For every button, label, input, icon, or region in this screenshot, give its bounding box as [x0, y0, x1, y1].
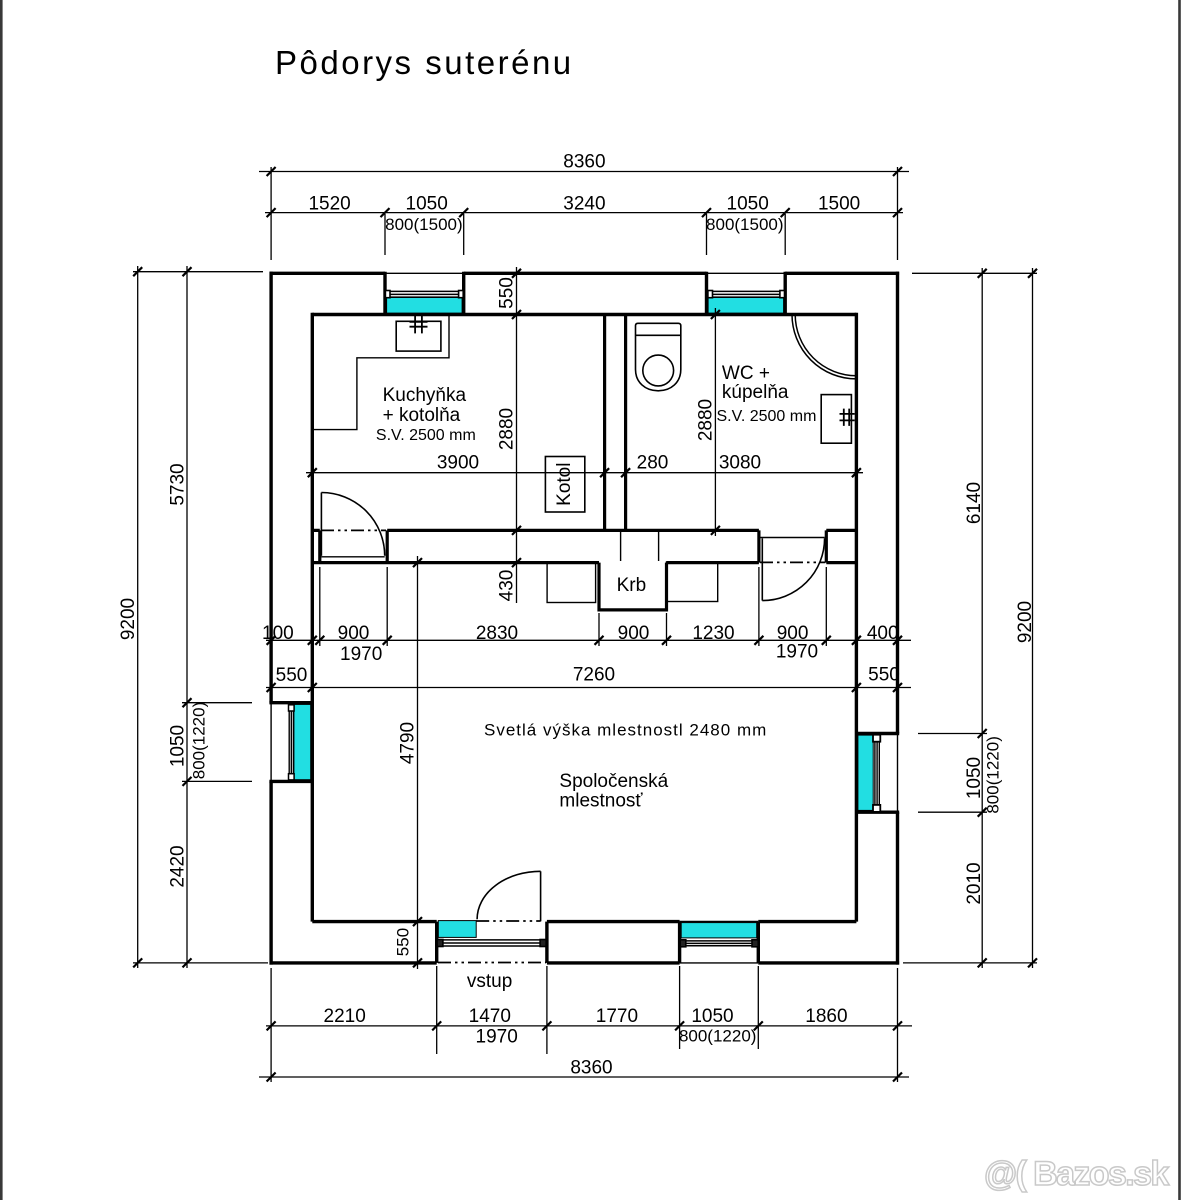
svg-text:Pôdorys suterénu: Pôdorys suterénu — [275, 44, 574, 81]
svg-text:100: 100 — [262, 623, 294, 644]
svg-text:2880: 2880 — [497, 408, 518, 450]
svg-text:430: 430 — [497, 570, 518, 602]
svg-text:2830: 2830 — [476, 623, 518, 644]
svg-text:550: 550 — [276, 665, 308, 686]
svg-text:9200: 9200 — [118, 598, 139, 640]
svg-text:5730: 5730 — [167, 463, 188, 505]
svg-text:Spoločenská: Spoločenská — [559, 771, 668, 792]
svg-text:1050: 1050 — [727, 194, 769, 215]
svg-text:1860: 1860 — [805, 1006, 847, 1027]
svg-text:2420: 2420 — [167, 845, 188, 887]
svg-text:4790: 4790 — [398, 722, 419, 764]
svg-text:1970: 1970 — [340, 644, 382, 665]
svg-text:550: 550 — [394, 928, 413, 956]
svg-text:1770: 1770 — [596, 1006, 638, 1027]
svg-text:1050: 1050 — [406, 194, 448, 215]
svg-text:3240: 3240 — [563, 194, 605, 215]
svg-text:400: 400 — [867, 623, 899, 644]
svg-text:2010: 2010 — [964, 862, 985, 904]
svg-text:S.V. 2500 mm: S.V. 2500 mm — [717, 408, 817, 425]
svg-text:Kuchyňka: Kuchyňka — [383, 385, 467, 406]
svg-text:2210: 2210 — [324, 1006, 366, 1027]
svg-text:6140: 6140 — [964, 482, 985, 524]
svg-text:280: 280 — [637, 453, 669, 474]
svg-text:800(1220): 800(1220) — [679, 1027, 757, 1046]
svg-text:8360: 8360 — [563, 152, 605, 173]
svg-text:900: 900 — [618, 623, 650, 644]
svg-text:1970: 1970 — [776, 642, 818, 663]
svg-text:+ kotolňa: + kotolňa — [383, 405, 461, 426]
svg-text:3080: 3080 — [719, 453, 761, 474]
svg-text:2880: 2880 — [695, 399, 716, 441]
svg-text:Krb: Krb — [617, 575, 647, 596]
svg-text:800(1500): 800(1500) — [706, 215, 784, 234]
svg-text:mlestnosť: mlestnosť — [559, 791, 643, 812]
svg-text:1970: 1970 — [476, 1027, 518, 1048]
svg-text:550: 550 — [868, 665, 900, 686]
svg-text:800(1500): 800(1500) — [385, 215, 463, 234]
svg-text:kúpelňa: kúpelňa — [722, 382, 789, 403]
svg-text:1230: 1230 — [692, 623, 734, 644]
svg-text:@( Bazos.sk: @( Bazos.sk — [984, 1155, 1169, 1193]
svg-text:9200: 9200 — [1015, 601, 1036, 643]
svg-text:Kotol: Kotol — [554, 463, 575, 506]
svg-text:8360: 8360 — [570, 1058, 612, 1079]
svg-text:7260: 7260 — [573, 665, 615, 686]
svg-text:vstup: vstup — [467, 971, 512, 992]
svg-text:1050: 1050 — [167, 725, 188, 767]
svg-text:800(1220): 800(1220) — [190, 702, 209, 780]
svg-text:S.V. 2500 mm: S.V. 2500 mm — [376, 427, 476, 444]
svg-text:1050: 1050 — [691, 1006, 733, 1027]
svg-text:1470: 1470 — [469, 1006, 511, 1027]
svg-text:800(1220): 800(1220) — [983, 736, 1002, 814]
svg-text:1050: 1050 — [964, 757, 985, 799]
svg-text:1500: 1500 — [818, 194, 860, 215]
svg-text:WC +: WC + — [722, 363, 770, 384]
svg-text:550: 550 — [497, 277, 518, 309]
svg-text:Svetlá výška mlestnostl 2480 m: Svetlá výška mlestnostl 2480 mm — [484, 721, 767, 740]
svg-text:900: 900 — [338, 623, 370, 644]
svg-text:3900: 3900 — [437, 453, 479, 474]
svg-text:1520: 1520 — [308, 194, 350, 215]
